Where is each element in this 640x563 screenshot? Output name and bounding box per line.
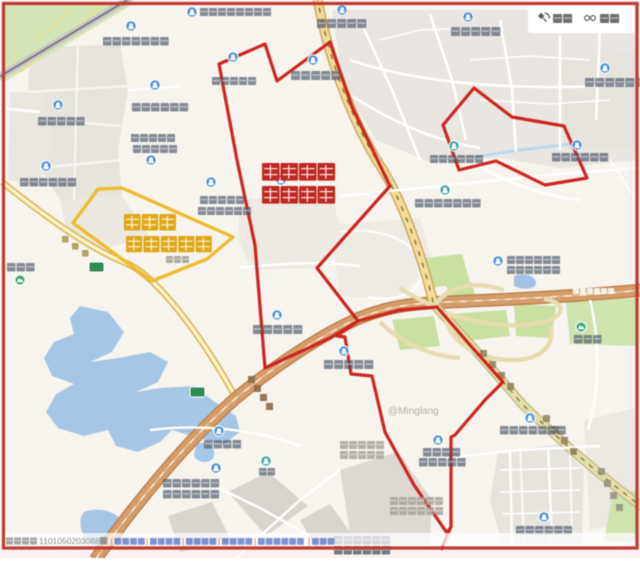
svg-text:@Minglang: @Minglang: [388, 406, 439, 417]
svg-text:11010502030880: 11010502030880: [39, 536, 105, 546]
